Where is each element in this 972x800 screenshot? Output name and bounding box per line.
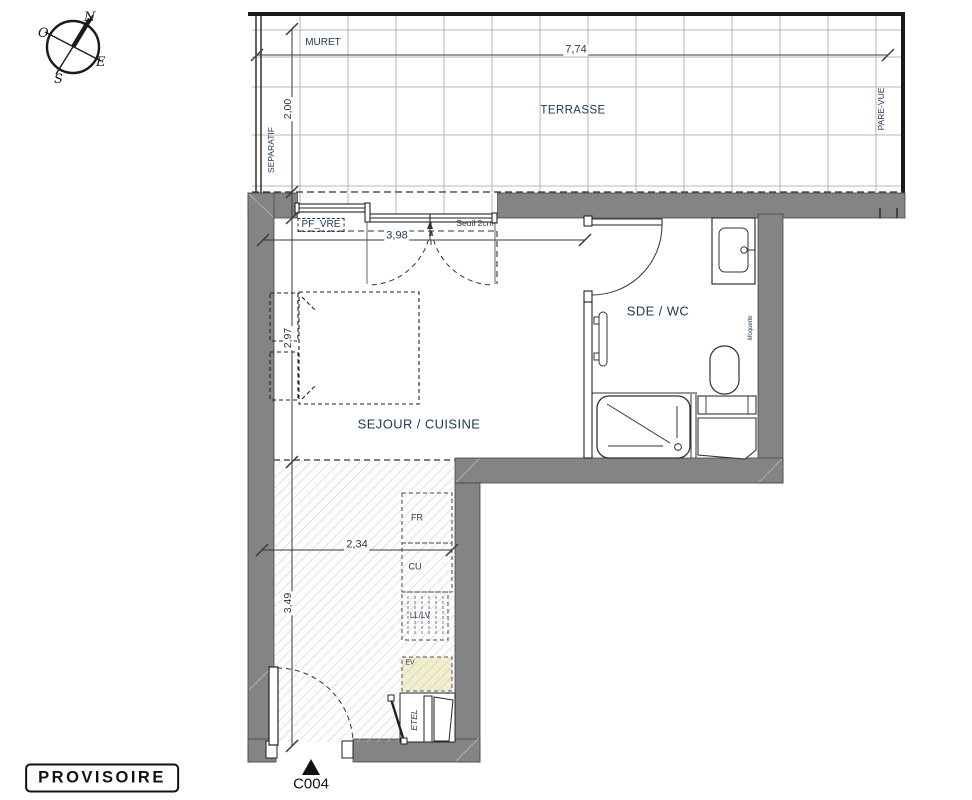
floor-plan: N O E S MURET 7,74 TERRASSE SEPARATIF PA… (0, 0, 972, 800)
washer-label: LL/LV (410, 612, 430, 620)
fridge-label: FR (411, 514, 423, 523)
bathroom-partition (584, 216, 592, 458)
bathroom-label: SDE / WC (627, 305, 689, 318)
separatif-label: SEPARATIF (267, 127, 276, 173)
kitchen-width-dimension: 2,34 (344, 540, 369, 551)
muret-label: MURET (305, 38, 341, 48)
provisoire-stamp: PROVISOIRE (25, 764, 179, 793)
entry-marker-triangle (302, 759, 320, 775)
closet-label: ETEL (410, 709, 419, 730)
pare-vue-label: PARE-VUE (877, 88, 886, 131)
terrace-depth-dimension: 2,00 (283, 97, 294, 121)
terrace-room-label: TERRASSE (540, 105, 605, 117)
towel-radiator (594, 312, 607, 366)
sink-label: EV (405, 660, 414, 667)
compass-s-label: S (54, 72, 63, 87)
living-depth-dimension: 2,97 (283, 326, 294, 350)
terrace-width-dimension: 7,74 (563, 45, 588, 56)
living-width-dimension: 3,98 (384, 231, 409, 242)
floor-plan-drawing: N O E S (0, 0, 972, 800)
shower (592, 393, 697, 458)
bathroom-finish-note: Moquette (748, 315, 754, 340)
compass-o-label: O (38, 26, 49, 41)
unit-number: C004 (293, 777, 329, 792)
window-label: PF_VRE (298, 218, 345, 232)
terrace-border (248, 12, 905, 193)
living-room-label: SEJOUR / CUISINE (358, 418, 481, 431)
kitchen-depth-dimension: 3,49 (283, 591, 294, 615)
bathroom-door (592, 219, 662, 295)
vanity-sink (712, 218, 755, 284)
compass-rose: N O E S (38, 10, 106, 87)
compass-e-label: E (95, 55, 106, 70)
threshold-label: Seuil 2cm (456, 219, 493, 228)
toilet (698, 346, 756, 459)
cooktop-label: CU (409, 563, 422, 572)
compass-n-label: N (83, 10, 96, 25)
